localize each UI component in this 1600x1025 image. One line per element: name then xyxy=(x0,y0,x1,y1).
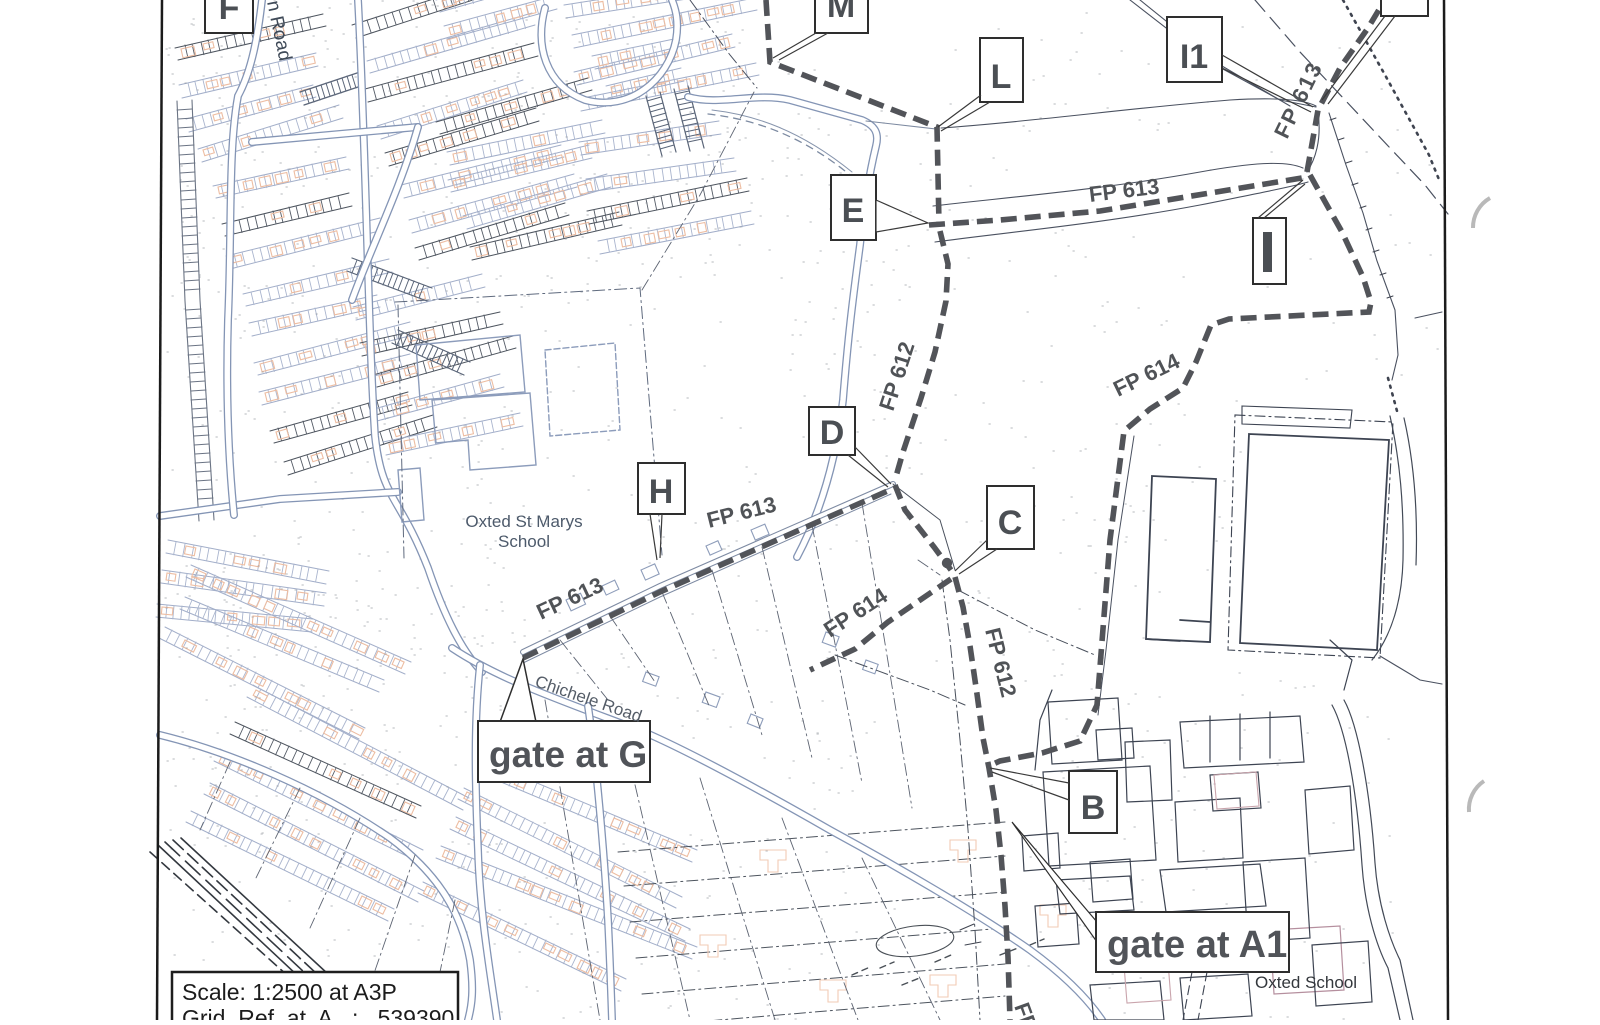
svg-text:B: B xyxy=(1081,789,1106,827)
svg-text:Scale: 1:2500 at A3P: Scale: 1:2500 at A3P xyxy=(182,979,397,1005)
svg-text:M: M xyxy=(827,0,855,25)
svg-text:F: F xyxy=(219,0,240,27)
svg-text:D: D xyxy=(820,414,845,452)
svg-text:L: L xyxy=(991,58,1012,96)
svg-text:gate at G: gate at G xyxy=(489,734,647,775)
svg-text:gate at A1: gate at A1 xyxy=(1107,924,1287,966)
svg-text:E: E xyxy=(842,192,865,230)
svg-text:C: C xyxy=(998,504,1023,542)
svg-text:Grid Ref at A : 539390: Grid Ref at A : 539390 xyxy=(182,1005,454,1020)
svg-text:I1: I1 xyxy=(1180,38,1208,76)
svg-text:Oxted St Marys: Oxted St Marys xyxy=(465,512,582,531)
svg-text:Oxted School: Oxted School xyxy=(1255,973,1357,992)
svg-text:School: School xyxy=(498,532,550,551)
svg-text:H: H xyxy=(649,473,674,511)
